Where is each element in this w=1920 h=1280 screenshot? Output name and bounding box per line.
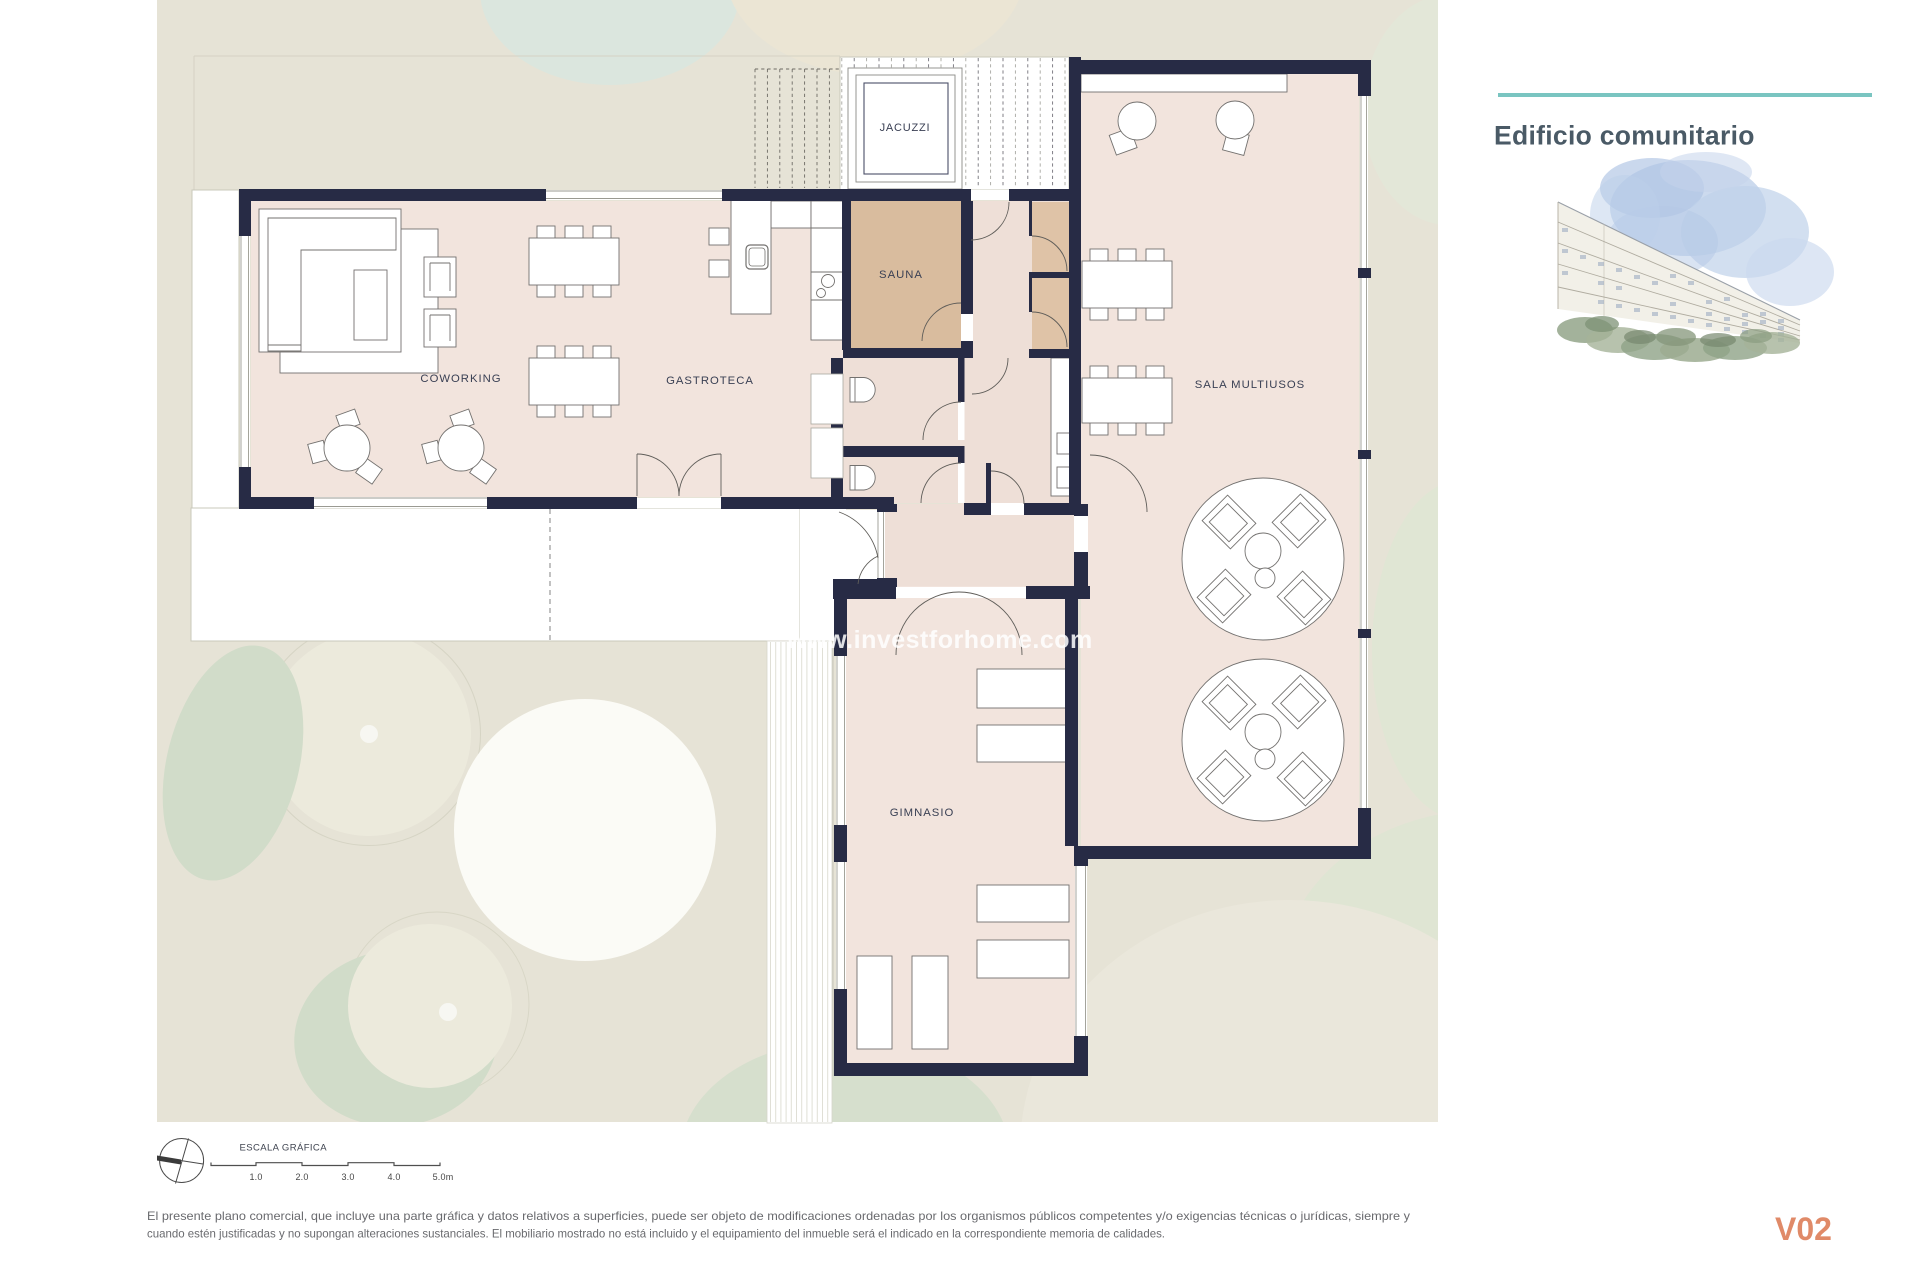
svg-text:Edificio comunitario: Edificio comunitario: [1494, 121, 1755, 151]
svg-text:SALA MULTIUSOS: SALA MULTIUSOS: [1195, 379, 1305, 391]
svg-text:www.investforhome.com: www.investforhome.com: [786, 626, 1092, 654]
svg-text:SAUNA: SAUNA: [879, 269, 923, 281]
svg-text:GIMNASIO: GIMNASIO: [890, 807, 955, 819]
svg-text:1.0: 1.0: [249, 1172, 262, 1182]
svg-text:COWORKING: COWORKING: [420, 373, 501, 385]
svg-text:El presente plano comercial, q: El presente plano comercial, que incluye…: [147, 1209, 1410, 1223]
svg-text:3.0: 3.0: [341, 1172, 354, 1182]
svg-text:GASTROTECA: GASTROTECA: [666, 375, 754, 387]
svg-text:JACUZZI: JACUZZI: [880, 122, 931, 134]
svg-text:2.0: 2.0: [295, 1172, 308, 1182]
svg-text:ESCALA GRÁFICA: ESCALA GRÁFICA: [240, 1143, 328, 1154]
svg-text:cuando estén justificadas y no: cuando estén justificadas y no supongan …: [147, 1227, 1165, 1241]
svg-text:5.0m: 5.0m: [433, 1172, 454, 1182]
svg-text:V02: V02: [1775, 1211, 1832, 1247]
svg-text:4.0: 4.0: [387, 1172, 400, 1182]
